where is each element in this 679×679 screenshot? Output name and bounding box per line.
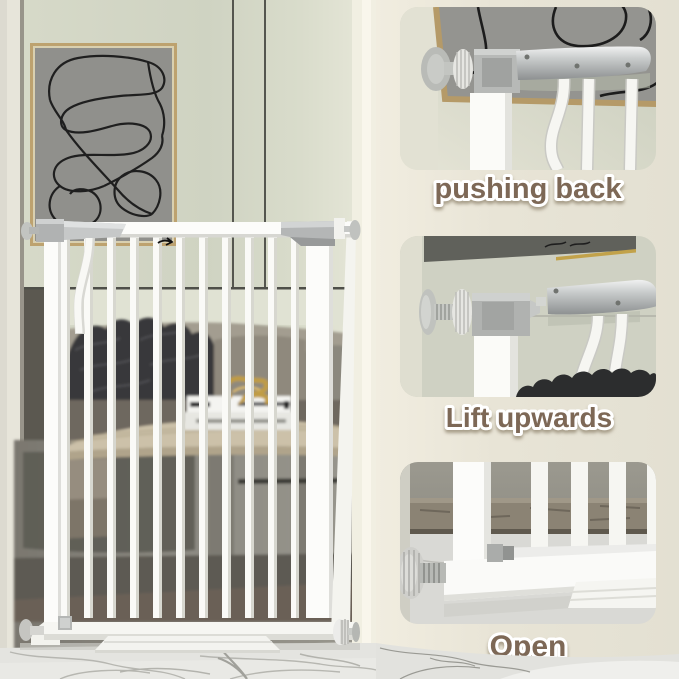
svg-text:pushing back: pushing back bbox=[435, 173, 623, 205]
svg-text:Lift upwards: Lift upwards bbox=[446, 402, 612, 433]
